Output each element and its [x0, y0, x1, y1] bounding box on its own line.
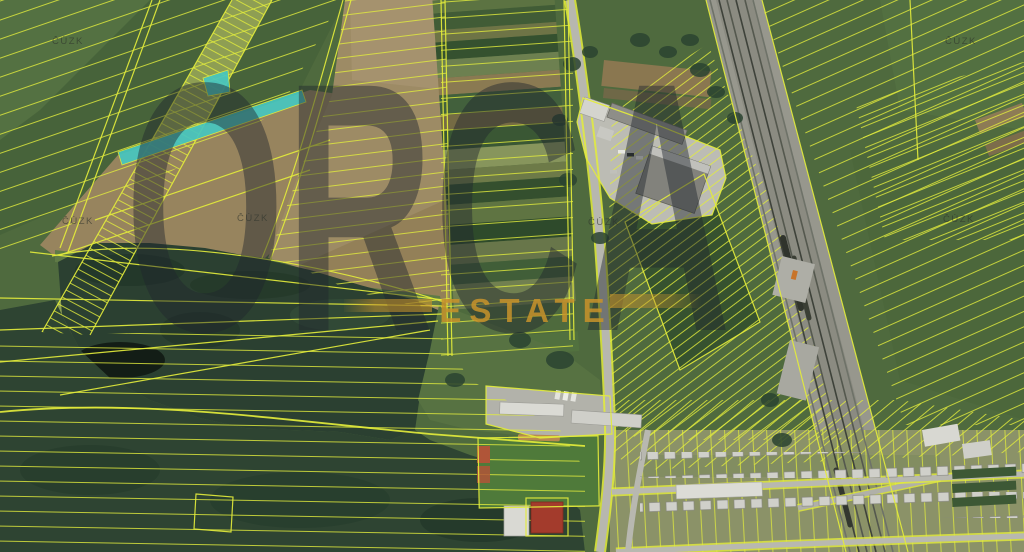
brand-watermark-estate: ESTATE	[439, 292, 612, 329]
brand-watermark-orca: ORCA	[125, 9, 731, 405]
brand-bar-left	[344, 299, 432, 312]
provider-watermark: ČÚZK	[237, 213, 269, 224]
provider-watermark: ČÚZK	[62, 216, 94, 227]
provider-watermark: ČÚZK	[943, 214, 975, 225]
white-building	[504, 506, 529, 536]
provider-watermark: ČÚZK	[945, 36, 977, 47]
provider-watermark: ČÚZK	[52, 36, 84, 47]
brand-bar-right	[610, 294, 702, 308]
cadastral-map-canvas[interactable]: ORCA ESTATE ČÚZK ČÚZK ČÚZK ČÚZK ČÚZK ČÚZ…	[0, 0, 1024, 552]
map-viewport[interactable]: ORCA ESTATE ČÚZK ČÚZK ČÚZK ČÚZK ČÚZK ČÚZ…	[0, 0, 1024, 552]
provider-watermark: ČÚZK	[588, 217, 620, 228]
